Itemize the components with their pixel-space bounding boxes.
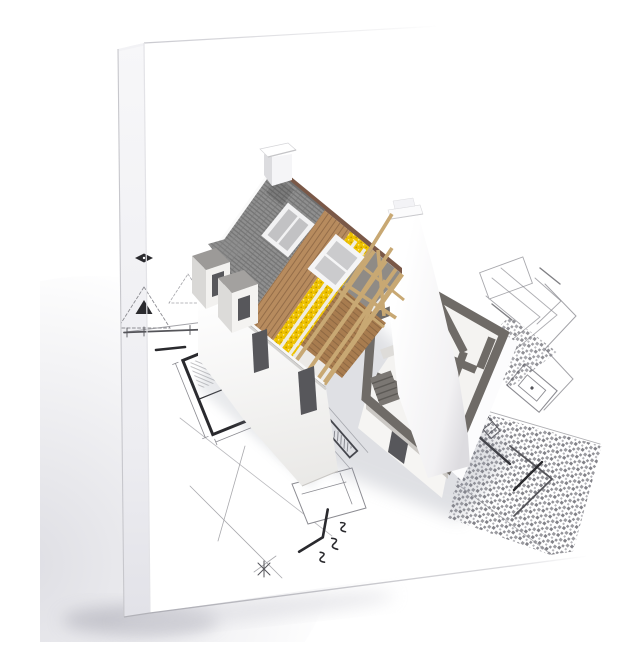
- scene-svg: [40, 16, 626, 642]
- wall-window-2: [298, 366, 317, 415]
- canvas-print-product-photo: [40, 16, 626, 642]
- wing-window-2: [238, 295, 250, 321]
- wall-window: [252, 329, 269, 373]
- canvas-print: [118, 16, 626, 617]
